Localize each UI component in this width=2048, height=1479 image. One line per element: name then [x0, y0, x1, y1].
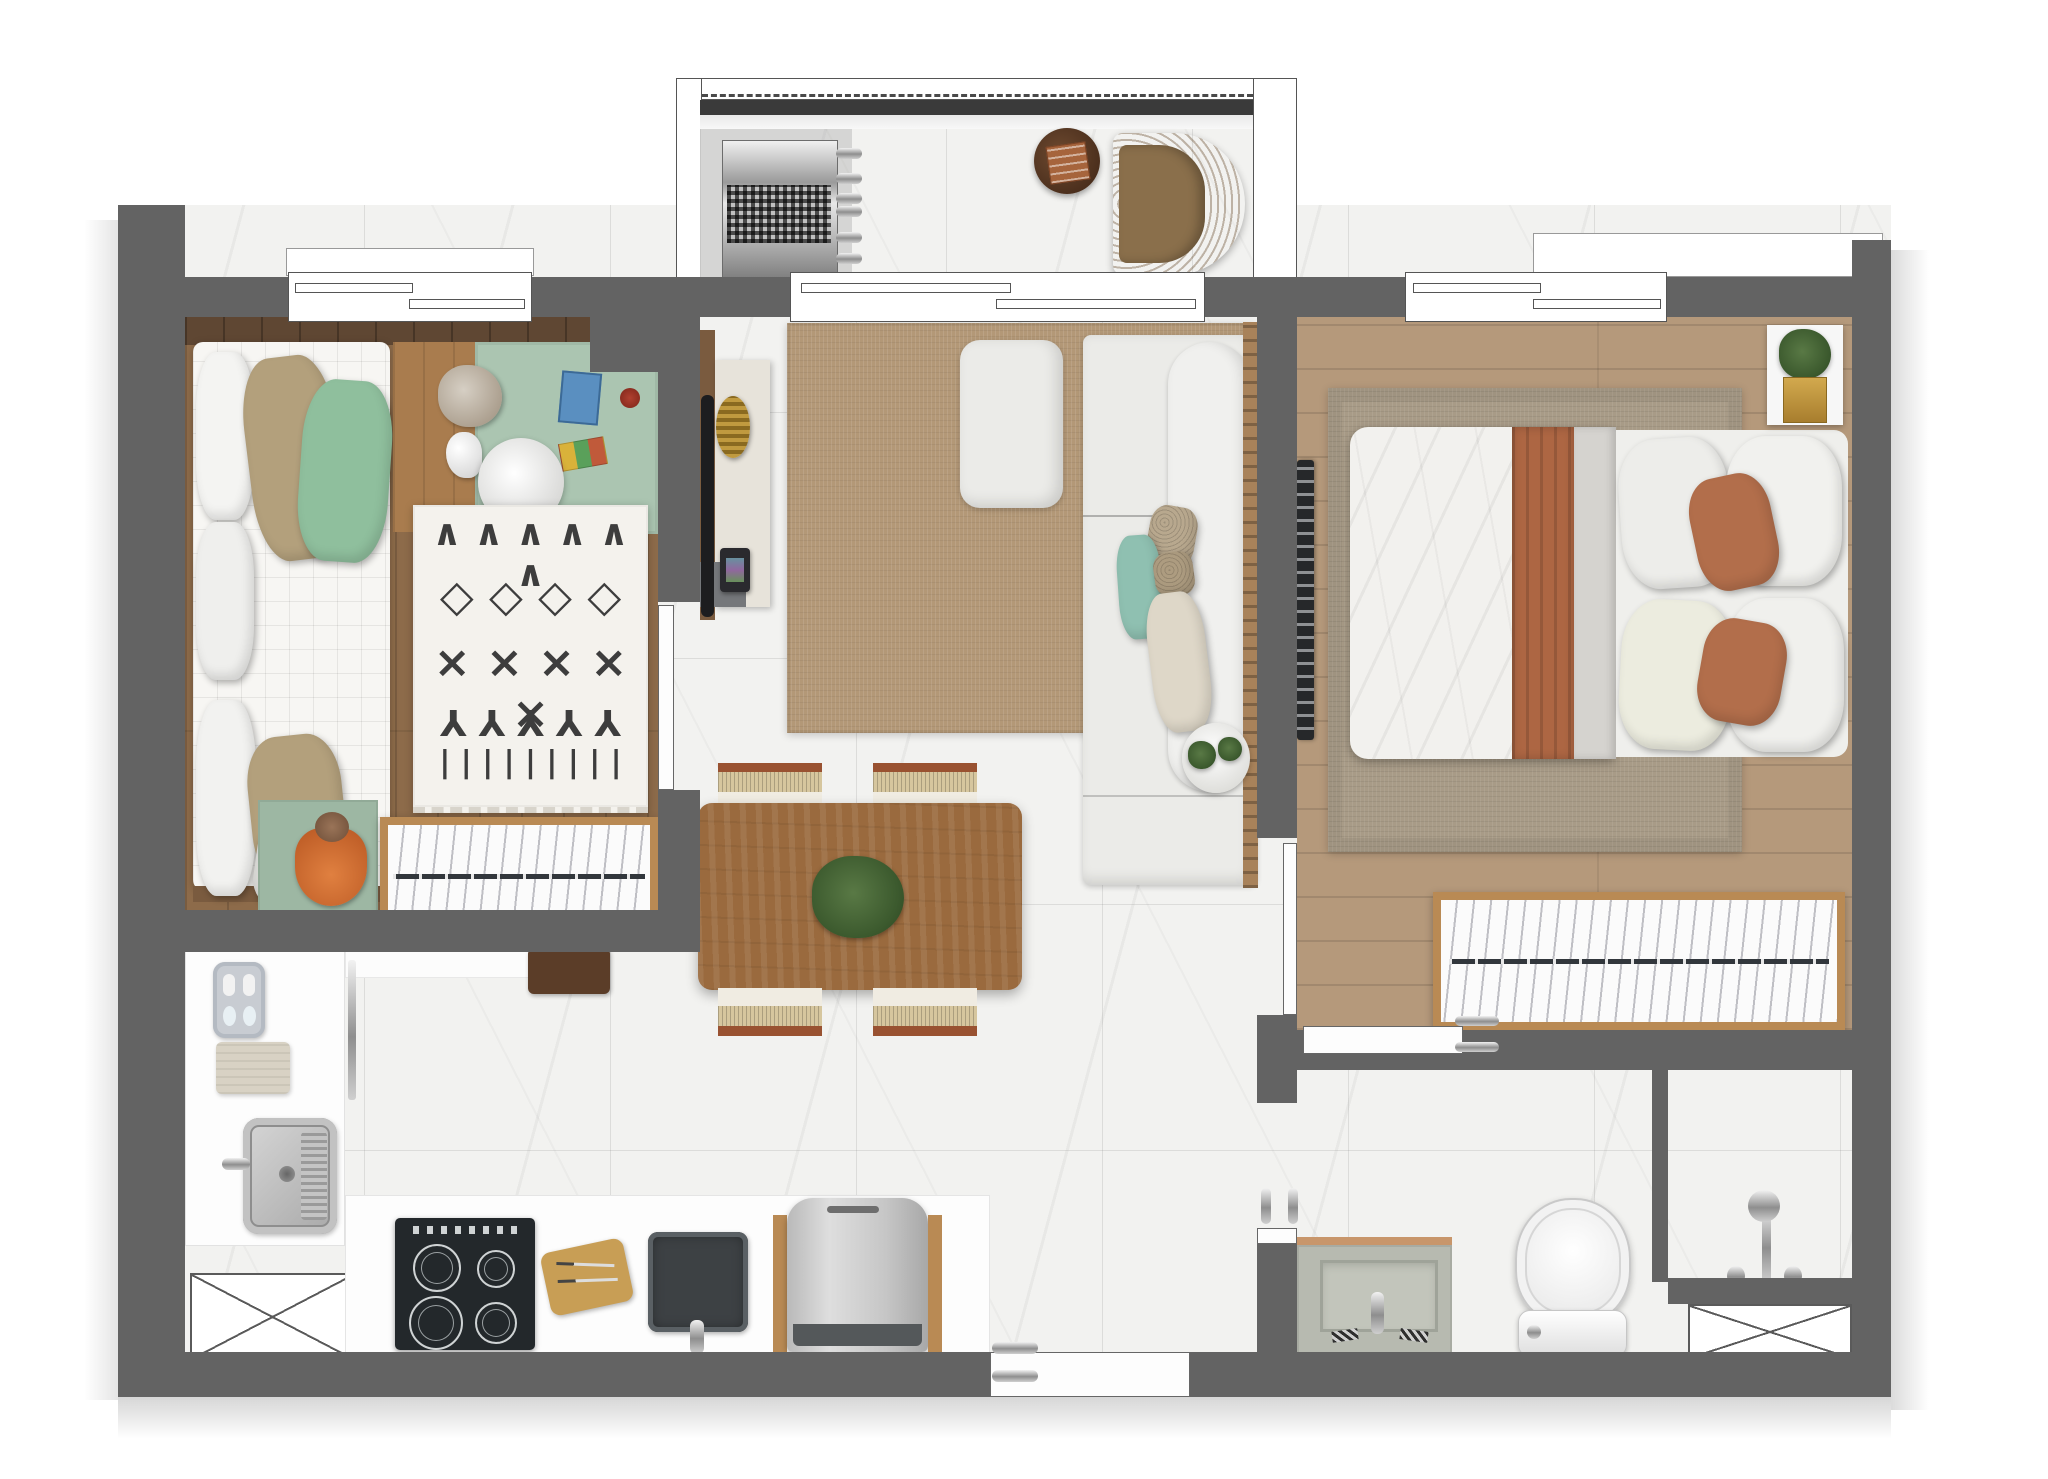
chair-seat	[718, 988, 822, 1006]
burner-2	[477, 1250, 515, 1288]
master-window	[1405, 272, 1667, 322]
balcony-parapet-right	[1253, 78, 1297, 278]
gold-decor-tray	[716, 396, 750, 458]
sofa-side-wood-panel	[1243, 322, 1258, 888]
bedroom1-rug: ∧ ∧ ∧ ∧ ∧ ∧ ◇ ◇ ◇ ◇ × × × × × Y Y Y Y Y …	[413, 505, 648, 813]
succulent-2	[1218, 737, 1242, 761]
ac-valve-5	[836, 232, 862, 243]
balcony-rail-sill	[700, 115, 1253, 129]
shower-partition	[1652, 1070, 1668, 1282]
entry-door-hinge-2	[992, 1370, 1038, 1382]
toilet-flush-button	[1527, 1325, 1541, 1339]
bathroom-door-frame	[1257, 1228, 1297, 1244]
burner-4	[475, 1302, 517, 1344]
wall-bedroom1-right-lower	[658, 790, 700, 915]
master-window-leaf-2	[1533, 299, 1661, 309]
wall-divider-mid	[1257, 1015, 1297, 1103]
sofa-seam-2	[1083, 795, 1257, 797]
shadow-bottom	[118, 1397, 1891, 1439]
folded-sheet-band	[1574, 427, 1616, 759]
wall-bottom-right	[1190, 1352, 1891, 1397]
washer-space-marker	[190, 1273, 355, 1361]
bed1-pillow-white-c	[196, 700, 256, 896]
vanity-faucet	[1371, 1292, 1384, 1334]
kitchen-towel	[216, 1042, 290, 1094]
knife-1	[556, 1262, 614, 1267]
plant-shelf	[1767, 325, 1843, 425]
chair-rattan-band	[873, 1006, 977, 1026]
ac-valve-3	[836, 193, 862, 204]
wall-pillar-center	[590, 277, 700, 372]
dining-chair-top-right	[873, 763, 977, 807]
refrigerator-handle	[827, 1206, 879, 1213]
master-wardrobe	[1433, 892, 1845, 1030]
balcony-dashed-line	[702, 94, 1253, 97]
floor-plan: ∧ ∧ ∧ ∧ ∧ ∧ ◇ ◇ ◇ ◇ × × × × × Y Y Y Y Y …	[0, 0, 2048, 1479]
master-window-leaf-1	[1413, 283, 1541, 293]
soap-tray	[213, 962, 265, 1038]
terracotta-throw	[1512, 427, 1574, 759]
burner-3	[409, 1296, 463, 1350]
plush-toy	[295, 828, 367, 906]
refrigerator-base	[793, 1324, 922, 1346]
ac-condenser-unit	[722, 140, 838, 280]
bathroom-door-handle-1	[1261, 1188, 1271, 1224]
sink-ridges	[301, 1132, 327, 1220]
master-wardrobe-rail	[1449, 959, 1829, 964]
ac-grille	[727, 185, 831, 243]
induction-cooktop	[395, 1218, 535, 1350]
chair-seat	[873, 988, 977, 1006]
wall-bottom-left	[118, 1352, 990, 1397]
chair-frame-band	[873, 763, 977, 772]
speaker-display	[726, 558, 744, 582]
dining-chair-bottom-left	[718, 988, 822, 1036]
balcony-rail-dark	[700, 100, 1253, 115]
tall-faucet-bar	[348, 960, 356, 1100]
ottoman	[960, 340, 1063, 508]
succulent-plate	[1182, 723, 1250, 793]
entry-door-hinge-1	[992, 1342, 1038, 1354]
desk-decor-vases	[446, 432, 482, 478]
chair-frame-band	[718, 1026, 822, 1036]
soap-pump-1	[223, 974, 235, 996]
magazine	[1046, 141, 1091, 184]
master-door-leaf	[1283, 843, 1297, 1015]
toy-book	[558, 370, 602, 425]
media-speaker	[720, 548, 750, 592]
rug-row-ticks: | | | | | | | | |	[413, 745, 648, 780]
toy-red-disc	[620, 388, 640, 408]
chair-rattan-band	[873, 772, 977, 792]
table-plant	[812, 856, 904, 938]
wall-divider-upper	[1257, 317, 1297, 838]
dining-chair-bottom-right	[873, 988, 977, 1036]
shower-head	[1748, 1190, 1780, 1222]
wicker-armchair-cushion	[1119, 145, 1205, 263]
shelf-plant	[1779, 329, 1831, 379]
master-doorway-handle-1	[1455, 1016, 1499, 1026]
soap-pump-2	[243, 974, 255, 996]
toilet-bowl	[1515, 1198, 1631, 1324]
rug-row-ypattern: Y Y Y Y Y	[413, 701, 648, 742]
sink-left-faucet	[222, 1158, 250, 1170]
vanity-wood-edge	[1297, 1237, 1452, 1245]
refrigerator	[787, 1198, 928, 1352]
shadow-left	[84, 220, 118, 1400]
wardrobe1-rail	[393, 874, 645, 879]
ac-valve-4	[836, 206, 862, 217]
fridge-side-panel-left	[773, 1215, 787, 1352]
shadow-right	[1891, 250, 1929, 1410]
bedroom1-window-leaf-2	[409, 299, 525, 309]
window-sill-master	[1533, 233, 1883, 277]
shelf-gold-box	[1783, 377, 1827, 423]
bed1-pillow-white-b	[196, 522, 254, 680]
wall-bedroom1-right-upper	[658, 372, 700, 602]
ac-valve-1	[836, 148, 862, 159]
balcony-door-leaf-2	[996, 299, 1196, 309]
chair-frame-band	[873, 1026, 977, 1036]
dining-chair-top-left	[718, 763, 822, 807]
balcony-sliding-door	[790, 272, 1205, 322]
soap-bar-2	[243, 1006, 256, 1026]
shower-curb	[1668, 1278, 1852, 1304]
kitchen-sink-square	[648, 1232, 748, 1332]
square-sink-faucet	[690, 1320, 704, 1354]
master-doorway-handle-2	[1455, 1042, 1499, 1052]
balcony-side-table	[1034, 128, 1100, 194]
bedroom1-window-leaf-1	[295, 283, 413, 293]
ac-valve-6	[836, 253, 862, 264]
kitchen-sink-left	[243, 1118, 337, 1234]
wall-left	[118, 205, 185, 1397]
soap-bar-1	[223, 1006, 236, 1026]
bathroom-door-handle-2	[1288, 1188, 1298, 1224]
chair-rattan-band	[718, 1006, 822, 1026]
master-wall-tv	[1297, 460, 1314, 740]
bedroom1-window	[288, 272, 532, 322]
plush-toy-head	[315, 812, 349, 842]
chair-frame-band	[718, 763, 822, 772]
chair-rattan-band	[718, 772, 822, 792]
walnut-cutting-board	[528, 948, 610, 994]
wall-right-outer	[1852, 240, 1891, 1397]
bedroom1-door-leaf	[658, 605, 674, 790]
toilet-tank	[1518, 1310, 1627, 1357]
burner-1	[413, 1244, 461, 1292]
master-bottom-doorway	[1303, 1026, 1463, 1054]
rug-row-diamonds: ◇ ◇ ◇ ◇	[413, 571, 648, 622]
knife-2	[558, 1278, 618, 1283]
wall-bedroom1-bottom	[118, 910, 700, 952]
succulent-1	[1188, 741, 1216, 769]
balcony	[676, 60, 1301, 280]
fridge-side-panel-right	[928, 1215, 942, 1352]
sink-drain	[279, 1166, 295, 1182]
ac-valve-2	[836, 173, 862, 184]
balcony-door-leaf-1	[801, 283, 1011, 293]
balcony-parapet-left	[676, 78, 702, 278]
tv-screen	[701, 395, 714, 617]
teddy-bear	[438, 365, 502, 427]
cooktop-controls	[413, 1226, 523, 1234]
